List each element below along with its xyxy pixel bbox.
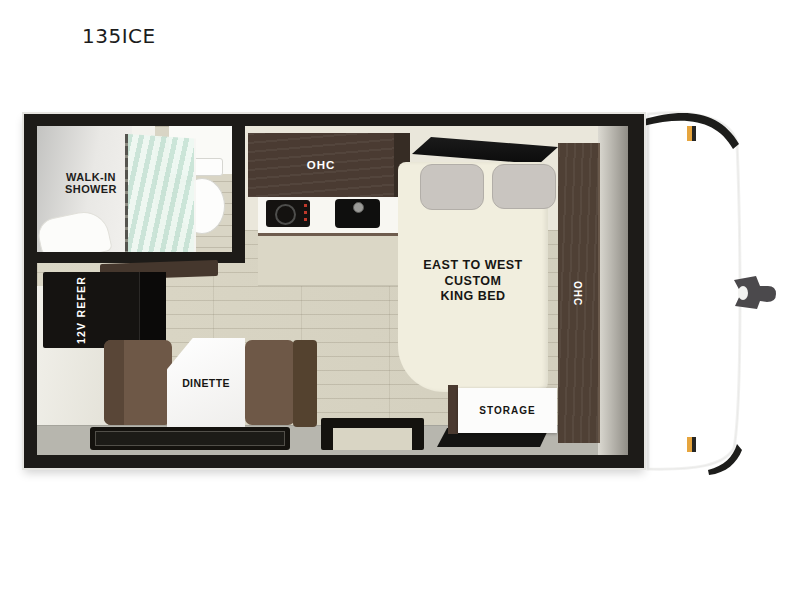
- cooktop: [266, 200, 310, 227]
- walk-in-shower-label: WALK-IN SHOWER: [45, 172, 137, 195]
- storage-divider: [448, 385, 458, 434]
- refrigerator-door: [139, 272, 166, 348]
- bathroom-interior: WALK-IN SHOWER: [37, 126, 232, 252]
- floorplan-outline: WALK-IN SHOWER OHC: [24, 114, 644, 468]
- kitchen-sink: [335, 199, 380, 228]
- bathroom: WALK-IN SHOWER: [37, 126, 245, 263]
- bed-label: EAST TO WEST CUSTOM KING BED: [398, 258, 548, 305]
- dinette-window: [90, 427, 290, 450]
- marker-light-bottom: [687, 437, 692, 452]
- cap-body: [648, 113, 740, 469]
- tv: [412, 137, 558, 164]
- faucet: [353, 202, 364, 213]
- door-threshold: [333, 428, 412, 450]
- pillow: [420, 164, 484, 210]
- dinette-bench-right: [245, 340, 295, 425]
- kitchen-overhead-cabinet: OHC: [248, 133, 410, 197]
- refrigerator: 12V REFER: [43, 272, 165, 348]
- floorplan-interior: WALK-IN SHOWER OHC: [37, 126, 628, 455]
- cooktop-knobs: [304, 204, 307, 223]
- bench-backrest: [293, 340, 317, 427]
- burner: [275, 204, 296, 225]
- shower-glass-door: [128, 134, 196, 252]
- window-pane: [95, 431, 285, 446]
- pillow: [492, 164, 556, 209]
- dinette-label: DINETTE: [167, 377, 245, 389]
- wardrobe-ohc-label: OHC: [558, 263, 598, 323]
- kitchen-base-cabinet: [258, 236, 400, 286]
- kitchen-ohc-label: OHC: [307, 159, 352, 171]
- dinette-bench-left: [104, 340, 172, 425]
- model-title: 135ICE: [82, 24, 156, 48]
- front-interior-wall: [598, 126, 628, 455]
- entry-door: [321, 418, 424, 450]
- storage-compartment: STORAGE: [458, 388, 557, 433]
- floorplan-page: 135ICE: [0, 0, 800, 600]
- refrigerator-label: 12V REFER: [43, 272, 119, 348]
- bench-backrest: [104, 340, 124, 425]
- marker-light-top: [687, 126, 692, 141]
- trailer-front-cap: [640, 100, 800, 490]
